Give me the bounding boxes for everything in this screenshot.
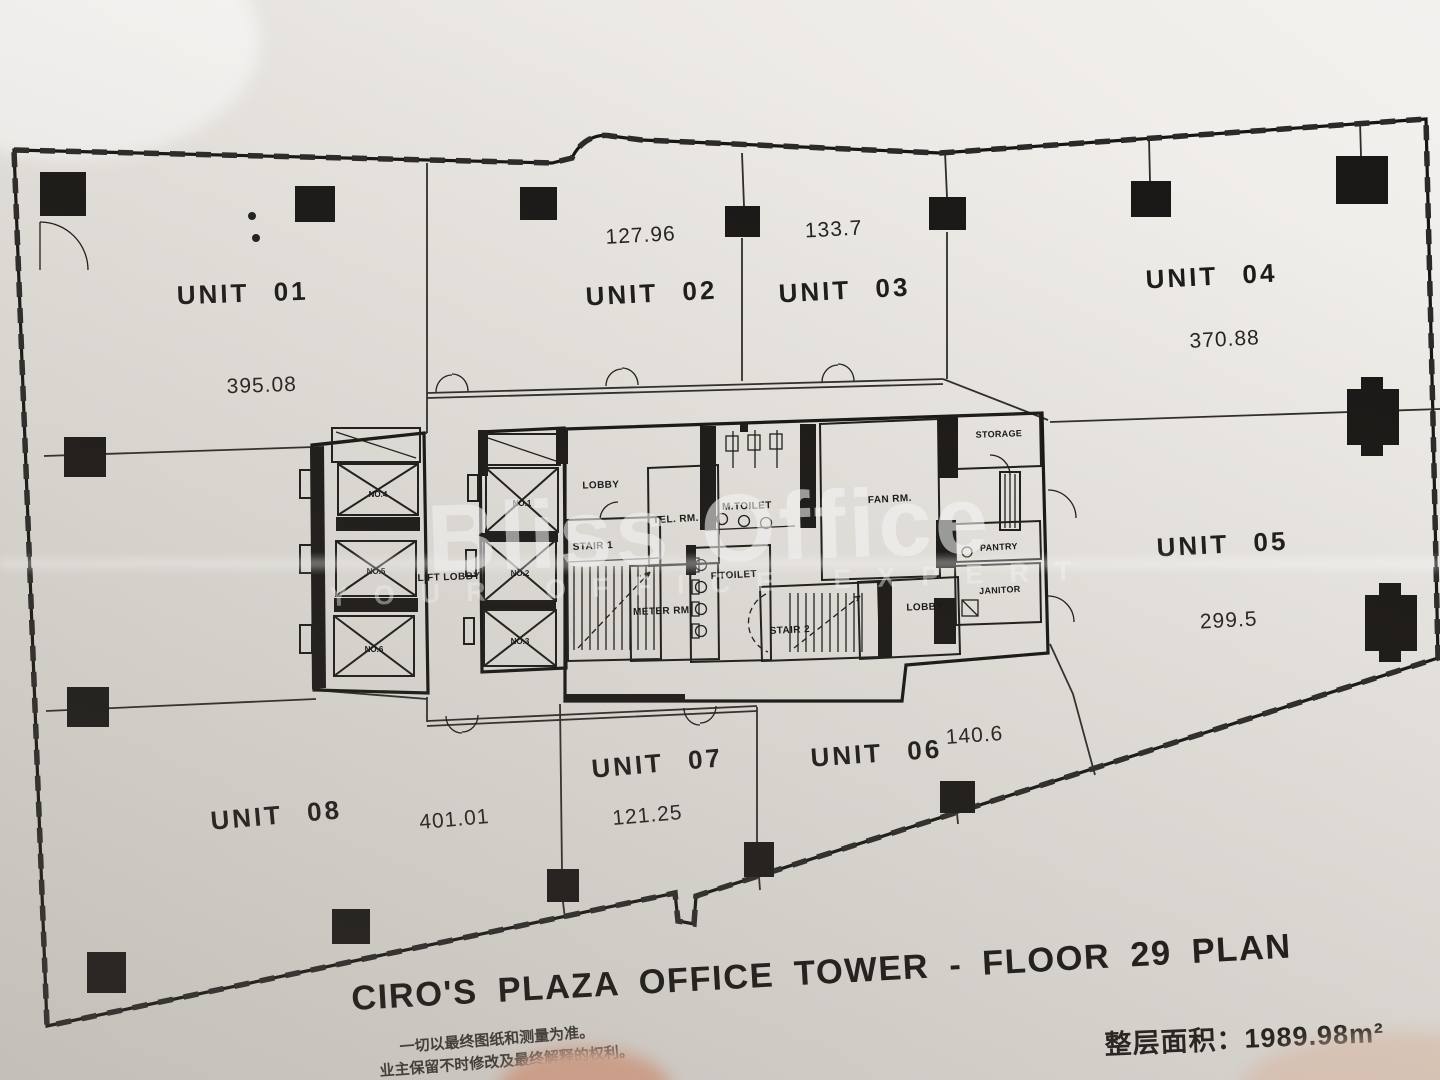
floor-plan-photo: NO.4 NO.5 NO.6 bbox=[0, 0, 1440, 1080]
floor-plan-drawing: NO.4 NO.5 NO.6 bbox=[0, 0, 1440, 1080]
shadow-overlay bbox=[0, 0, 1440, 1080]
